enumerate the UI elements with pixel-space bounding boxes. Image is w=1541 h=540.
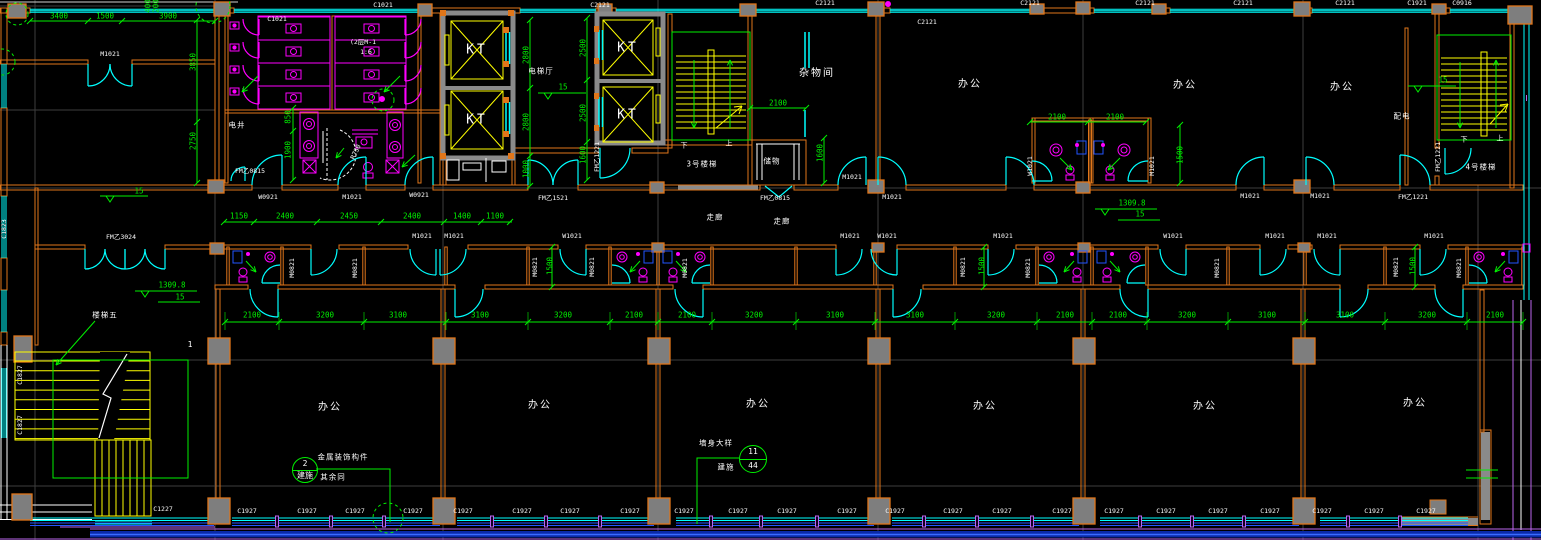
dimension-label: 2800 [522,46,530,64]
room-label: 办公 [1193,402,1217,412]
element-code-label: M1021 [842,174,862,181]
element-code-label: M1021 [1240,193,1260,200]
room-label: 办公 [958,80,982,90]
dimension-label: 2100 [1486,311,1504,319]
dimension-label: 1150 [230,212,248,220]
dimension-label: 3200 [1178,311,1196,319]
callout-note: 金属装饰构件 [318,453,369,461]
element-code-label: M1021 [444,233,464,240]
element-code-label: C1827 [17,365,24,385]
element-code-label: C1927 [560,508,580,515]
dimension-label: 2100 [1056,311,1074,319]
element-code-label: M1021 [1310,193,1330,200]
element-code-label: C2121 [1020,0,1040,6]
dimension-label: 2100 [1109,311,1127,319]
stair-direction-label: 上 [726,141,733,148]
dimension-label: 2100 [243,311,261,319]
room-label: 杂物间 [799,69,835,79]
element-code-label: C2121 [815,0,835,6]
dimension-label: 3200 [316,311,334,319]
element-code-label: M1021 [100,51,120,58]
element-code-label: FM乙1221 [1435,142,1442,172]
dimension-label: 1400 [453,212,471,220]
element-code-label: (2层M-1 [350,39,376,46]
element-code-label: M0821 [960,257,967,277]
element-code-label: FM乙0815 [235,168,265,175]
elevator-cab-label: KT [466,44,488,57]
element-code-label: C1927 [992,508,1012,515]
room-label: 走廊 [707,213,724,221]
element-code-label: FM乙1221 [594,142,601,172]
callout-number: 11 [740,446,766,460]
room-label: 4号楼梯 [1465,163,1496,171]
element-code-label: M0821 [1456,258,1463,278]
callout-note: 墙身大样 [699,439,733,447]
element-code-label: R750 [350,144,363,161]
dimension-label: 1000 [522,160,530,178]
dimension-label: 1500 [546,257,554,275]
element-code-label: C1927 [777,508,797,515]
room-label: 办公 [973,402,997,412]
element-code-label: C2121 [917,19,937,26]
element-code-label: C1927 [297,508,317,515]
dimension-label: 1900 [284,141,292,159]
dimension-label: 200 [152,0,160,13]
element-code-label: C1927 [1156,508,1176,515]
dimension-label: 3100 [1336,311,1354,319]
element-code-label: M0821 [532,257,539,277]
detail-callout-bubble: 2建施 [292,457,318,483]
room-label: 办公 [318,403,342,413]
element-code-label: M1021 [1317,233,1337,240]
callout-sheet: 建施 [293,471,317,483]
dimension-label: 2100 [678,311,696,319]
element-code-label: M0821 [682,258,689,278]
room-label: 走廊 [774,217,791,225]
dimension-label: 1100 [486,212,504,220]
element-code-label: C1927 [1364,508,1384,515]
stair-direction-label: 下 [1461,137,1468,144]
dimension-label: 3850 [189,53,197,71]
element-code-label: M0821 [1214,258,1221,278]
element-code-label: C1927 [512,508,532,515]
element-code-label: W1021 [1027,156,1034,176]
element-code-label: C1927 [1052,508,1072,515]
element-code-label: W0921 [258,194,278,201]
dimension-label: 2100 [769,99,787,107]
element-code-label: C0916 [1452,0,1472,6]
dimension-label: 3200 [745,311,763,319]
element-code-label: C1927 [345,508,365,515]
dimension-label: 1500 [978,257,986,275]
room-label: 电井 [229,121,246,129]
element-code-label: W1021 [562,233,582,240]
room-label: 办公 [746,400,770,410]
stair-direction-label: 上 [1497,136,1504,143]
dimension-label: 1500 [1409,257,1417,275]
element-code-label: C2121 [1335,0,1355,6]
room-label: 办公 [1173,81,1197,91]
dimension-label: 2500 [579,104,587,122]
element-code-label: C1921 [1407,0,1427,6]
dimension-label: 3900 [159,12,177,20]
element-code-label: FM乙0815 [760,195,790,202]
elevator-cab-label: KT [617,42,639,55]
callout-note: 其余同 [320,473,346,481]
element-code-label: C1927 [837,508,857,515]
callout-sheet: 44 [740,460,766,473]
dimension-label: 1309.8 [158,281,185,289]
element-code-label: W1021 [877,233,897,240]
dimension-label: 3200 [987,311,1005,319]
dimension-label: 2100 [625,311,643,319]
element-code-label: M1021 [412,233,432,240]
room-label: 储物 [764,157,781,165]
cad-canvas[interactable]: 杂物间办公办公办公办公办公办公办公办公办公电梯厅走廊走廊3号楼梯4号楼梯楼梯五储… [0,0,1541,540]
element-code-label: C1927 [237,508,257,515]
element-code-label: M1021 [342,194,362,201]
room-label: 办公 [1330,83,1354,93]
element-code-label: C1927 [403,508,423,515]
element-code-label: C2121 [590,2,610,9]
dimension-label: 3400 [50,12,68,20]
dimension-label: 15 [175,293,184,301]
dimension-label: 2100 [1048,113,1066,121]
element-code-label: FM乙3024 [106,234,136,241]
element-code-label: FM乙1221 [1398,194,1428,201]
element-code-label: C1021 [373,2,393,9]
element-code-label: W1021 [1163,233,1183,240]
element-code-label: M1021 [1265,233,1285,240]
dimension-label: 3100 [906,311,924,319]
dimension-label: 1500 [1176,146,1184,164]
room-label: 3号楼梯 [686,160,717,168]
element-code-label: C1927 [885,508,905,515]
element-code-label: M0821 [1393,257,1400,277]
element-code-label: C1927 [943,508,963,515]
dimension-label: 3100 [389,311,407,319]
room-label: 配电 [1394,112,1411,120]
elevator-cab-label: KT [617,109,639,122]
dimension-label: 3100 [471,311,489,319]
element-code-label: W0921 [409,192,429,199]
element-code-label: C1021 [267,16,287,23]
dimension-label: 15 [134,187,143,195]
dimension-label: 1600 [816,144,824,162]
element-code-label: C1827 [17,415,24,435]
elevator-cab-label: KT [466,114,488,127]
element-code-label: M1021 [1424,233,1444,240]
room-label: 办公 [1403,399,1427,409]
element-code-label: M1021 [1149,156,1156,176]
detail-callout-bubble: 1144 [739,445,767,473]
element-code-label: FM乙1521 [538,195,568,202]
element-code-label: C1927 [453,508,473,515]
element-code-label: C1927 [728,508,748,515]
element-code-label: C2121 [1233,0,1253,6]
element-code-label: M0821 [289,258,296,278]
dimension-label: 15 [1135,210,1144,218]
dimension-label: 3100 [826,311,844,319]
element-code-label: C1927 [1104,508,1124,515]
element-code-label: 1:6 [360,49,372,56]
element-code-label: M0821 [589,257,596,277]
stair-direction-label: 下 [681,143,688,150]
dimension-label: 3200 [554,311,572,319]
grid-number-label: 1 [188,341,193,349]
element-code-label: C1927 [1260,508,1280,515]
annotation-layer: 杂物间办公办公办公办公办公办公办公办公办公电梯厅走廊走廊3号楼梯4号楼梯楼梯五储… [0,0,1541,540]
room-label: 电梯厅 [528,67,554,75]
callout-number: 2 [293,458,317,471]
element-code-label: C1927 [620,508,640,515]
dimension-label: 2800 [522,113,530,131]
room-label: 楼梯五 [92,311,118,319]
dimension-label: 1500 [96,12,114,20]
dimension-label: 3200 [1418,311,1436,319]
dimension-label: 2400 [276,212,294,220]
element-code-label: M1021 [993,233,1013,240]
dimension-label: 2400 [403,212,421,220]
room-label: 办公 [528,401,552,411]
dimension-label: 15 [1438,76,1447,84]
element-code-label: C1823 [1,219,8,239]
element-code-label: C1927 [674,508,694,515]
element-code-label: M0821 [352,258,359,278]
dimension-label: 3100 [1258,311,1276,319]
element-code-label: C1927 [1312,508,1332,515]
element-code-label: C2121 [1135,0,1155,6]
dimension-label: 2750 [189,132,197,150]
element-code-label: M1021 [882,194,902,201]
dimension-label: 15 [558,83,567,91]
dimension-label: 2450 [340,212,358,220]
element-code-label: C1227 [153,506,173,513]
dimension-label: 2500 [579,39,587,57]
element-code-label: C1927 [1416,508,1436,515]
element-code-label: C1927 [1208,508,1228,515]
callout-note: 建施 [718,463,735,471]
dimension-label: 2100 [1106,113,1124,121]
element-code-label: M0821 [1025,258,1032,278]
dimension-label: 850 [284,110,292,124]
dimension-label: 1600 [579,146,587,164]
dimension-label: 1309.8 [1118,199,1145,207]
element-code-label: M1021 [840,233,860,240]
